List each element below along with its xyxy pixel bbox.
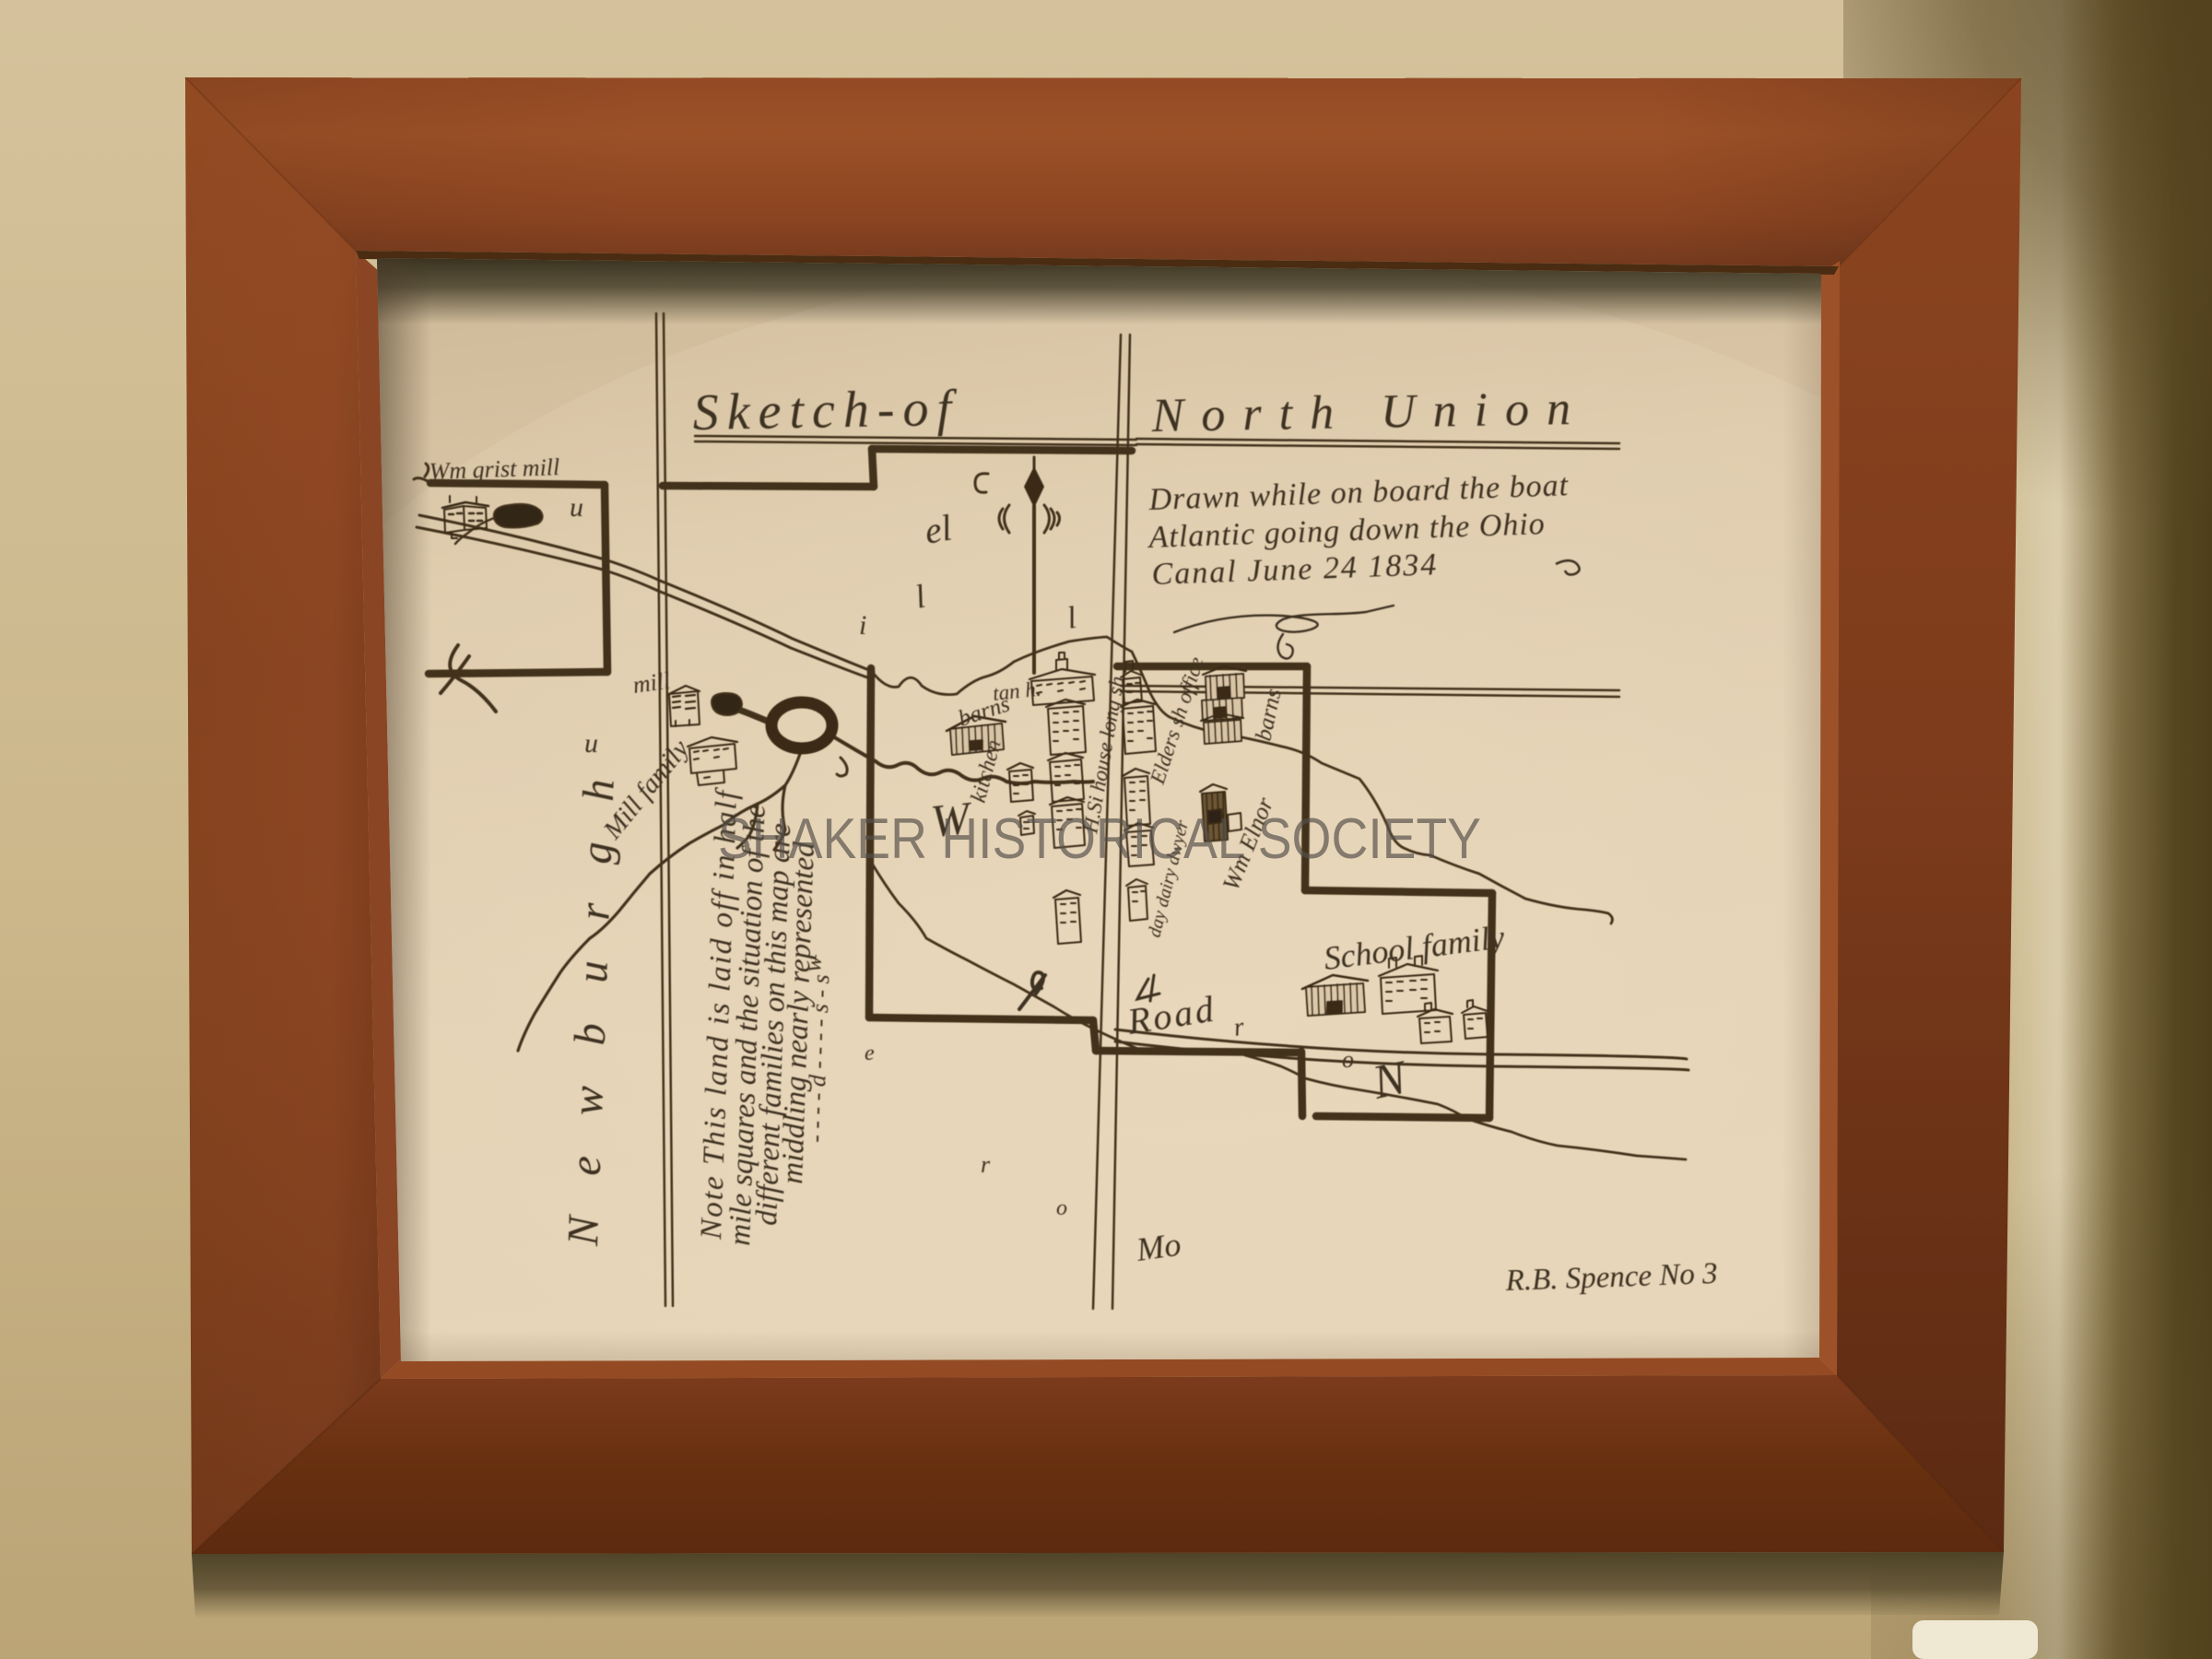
svg-text:Sketch-of: Sketch-of [692,380,959,441]
svg-text:i: i [859,610,866,641]
svg-text:r: r [981,1151,991,1178]
svg-text:Wm grist mill: Wm grist mill [429,453,560,485]
svg-text:o: o [1056,1196,1067,1220]
svg-text:North Union: North Union [1150,382,1588,442]
svg-text:Mo: Mo [1134,1226,1183,1268]
svg-text:w: w [799,954,827,972]
svg-text:SHAKER HISTORICAL SOCIETY: SHAKER HISTORICAL SOCIETY [718,807,1481,871]
svg-text:mill: mill [631,667,672,699]
svg-text:e: e [865,1041,875,1065]
svg-text:u: u [570,492,583,523]
svg-text:o: o [1342,1046,1354,1073]
